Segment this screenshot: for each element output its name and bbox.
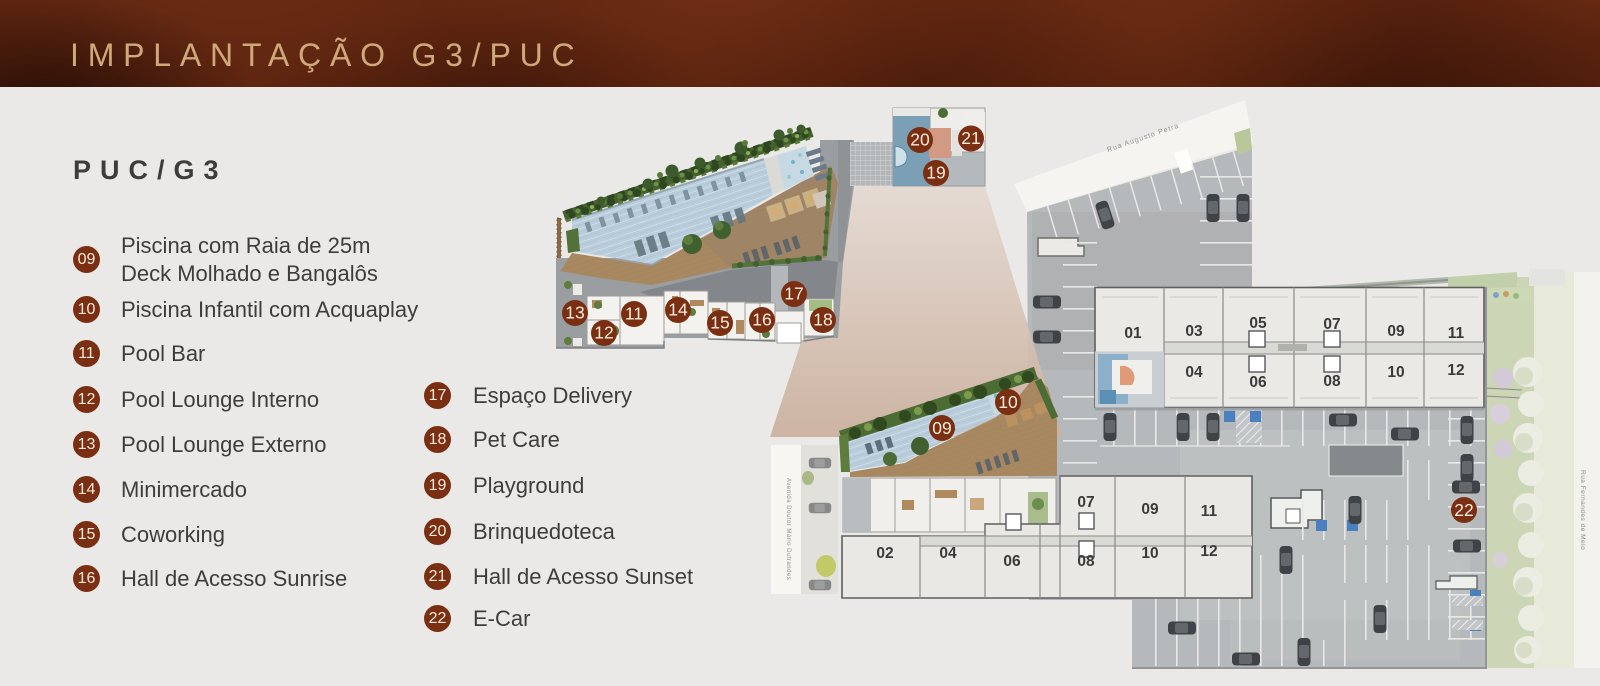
svg-text:11: 11 [1448, 325, 1465, 342]
svg-text:16: 16 [752, 310, 771, 330]
svg-text:03: 03 [1185, 323, 1203, 340]
svg-text:09: 09 [1141, 501, 1159, 518]
svg-text:05: 05 [1249, 315, 1267, 332]
svg-text:Rua Fernandes de Melo: Rua Fernandes de Melo [1579, 470, 1586, 550]
svg-text:06: 06 [1249, 374, 1267, 391]
svg-text:20: 20 [910, 130, 930, 150]
svg-text:09: 09 [932, 418, 951, 438]
svg-text:10: 10 [1141, 545, 1158, 562]
svg-text:14: 14 [668, 300, 688, 320]
svg-text:18: 18 [813, 310, 832, 330]
svg-text:12: 12 [594, 323, 613, 343]
svg-text:Avenida Doutor Mário Dutrandes: Avenida Doutor Mário Dutrandes [785, 478, 791, 580]
svg-text:21: 21 [961, 128, 980, 148]
svg-text:22: 22 [1454, 500, 1473, 520]
svg-text:07: 07 [1323, 316, 1340, 333]
svg-text:13: 13 [565, 303, 584, 323]
svg-text:06: 06 [1003, 553, 1021, 570]
svg-text:09: 09 [1387, 323, 1405, 340]
svg-text:08: 08 [1323, 373, 1341, 390]
svg-text:10: 10 [1387, 364, 1404, 381]
svg-text:19: 19 [926, 163, 945, 183]
svg-text:10: 10 [998, 392, 1018, 412]
svg-text:11: 11 [625, 304, 643, 324]
svg-text:04: 04 [1185, 364, 1203, 381]
svg-text:12: 12 [1447, 362, 1464, 379]
svg-text:02: 02 [876, 545, 893, 562]
svg-text:17: 17 [784, 284, 803, 304]
svg-text:07: 07 [1077, 494, 1094, 511]
svg-text:15: 15 [710, 313, 729, 333]
svg-text:11: 11 [1201, 503, 1218, 520]
svg-text:08: 08 [1077, 553, 1095, 570]
svg-text:04: 04 [939, 545, 957, 562]
svg-text:12: 12 [1200, 543, 1217, 560]
svg-text:01: 01 [1124, 325, 1142, 342]
